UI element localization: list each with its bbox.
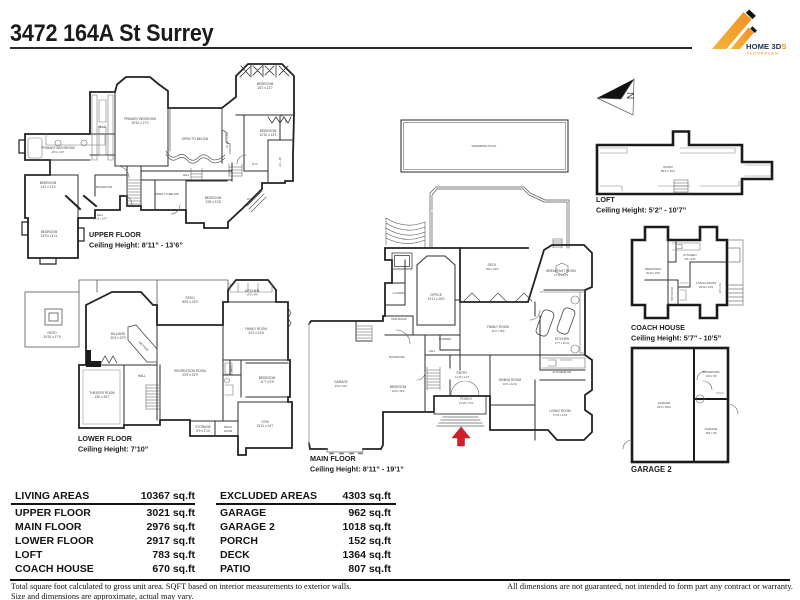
svg-text:20'4 x 11'7: 20'4 x 11'7 [52,150,65,154]
svg-text:LAUNDRY: LAUNDRY [393,291,406,295]
svg-text:17'11 x 12'9: 17'11 x 12'9 [554,273,569,277]
svg-text:23'9 x 23'9: 23'9 x 23'9 [182,373,197,377]
svg-text:12'8 x 10'3: 12'8 x 10'3 [392,389,405,393]
svg-text:PORCH: PORCH [460,397,472,401]
svg-text:BEDROOM: BEDROOM [390,385,407,389]
svg-text:13'9 x 14'11: 13'9 x 14'11 [41,234,58,238]
svg-text:21'9 x 18'9: 21'9 x 18'9 [492,329,505,333]
svg-text:10'4 x 4'11: 10'4 x 4'11 [719,282,722,294]
svg-text:BATH: BATH [230,366,233,372]
svg-text:11'10 x 11'7: 11'10 x 11'7 [455,375,469,379]
svg-text:COACH HOUSE: COACH HOUSE [631,323,685,332]
svg-text:GARAGE: GARAGE [334,380,348,384]
svg-text:17'11 x 13'9: 17'11 x 13'9 [553,413,568,417]
svg-text:24'2 x 22'8: 24'2 x 22'8 [248,331,263,335]
svg-text:HALL: HALL [183,173,190,177]
svg-text:ROOM: ROOM [224,429,232,433]
svg-text:LOFT: LOFT [596,195,615,204]
svg-text:13'8 x 12'8: 13'8 x 12'8 [205,200,220,204]
svg-text:OPEN TO BELOW: OPEN TO BELOW [182,137,209,141]
svg-text:Ceiling Height: 5’2” - 10’7”: Ceiling Height: 5’2” - 10’7” [596,206,687,215]
svg-text:POWDER: POWDER [439,337,451,341]
svg-text:9'9 x 1'10: 9'9 x 1'10 [196,429,210,433]
svg-text:50'2 x 19'1: 50'2 x 19'1 [661,169,676,173]
svg-text:KITCHEN: KITCHEN [245,289,260,293]
svg-text:MUD ROOM: MUD ROOM [391,317,407,321]
svg-text:MECH: MECH [224,425,232,429]
svg-text:29'10 x 14'9: 29'10 x 14'9 [699,285,713,289]
svg-text:GARAGE: GARAGE [705,427,718,431]
svg-text:BREAKFAST ROOM: BREAKFAST ROOM [546,269,576,273]
svg-text:14'2 x 13'2: 14'2 x 13'2 [40,185,55,189]
svg-text:34'10 x 17'9: 34'10 x 17'9 [44,335,61,339]
svg-text:BATHROOM: BATHROOM [389,355,405,359]
svg-text:20'4 x 22'9: 20'4 x 22'9 [110,336,125,340]
svg-text:Ceiling Height: 7’10”: Ceiling Height: 7’10” [78,445,149,454]
svg-text:15'1 x 13'7: 15'1 x 13'7 [257,86,272,90]
svg-text:N: N [624,92,635,99]
svg-text:78'2 x 20'0: 78'2 x 20'0 [486,267,499,271]
svg-text:GARAGE: GARAGE [658,401,671,405]
svg-text:21'10 x 7'10: 21'10 x 7'10 [459,401,474,405]
svg-text:FAMILY ROOM: FAMILY ROOM [487,325,509,329]
svg-text:MAIN FLOOR: MAIN FLOOR [310,454,356,463]
svg-text:HALL: HALL [429,349,436,353]
svg-text:SWIMMING POOL: SWIMMING POOL [471,144,496,148]
svg-text:DECK: DECK [488,263,498,267]
svg-text:12'10 x 13'1: 12'10 x 13'1 [260,133,277,137]
svg-text:29'10 x 15'0: 29'10 x 15'0 [646,271,660,275]
svg-text:ENTRY: ENTRY [457,371,469,375]
svg-text:W.I.C: W.I.C [98,125,106,129]
svg-text:PRIMARY BATHROOM: PRIMARY BATHROOM [41,146,75,150]
svg-text:OPEN TO BELOW: OPEN TO BELOW [155,192,179,196]
svg-text:W.I.C: W.I.C [252,163,258,166]
svg-text:Ceiling Height: 8’11” - 13’6”: Ceiling Height: 8’11” - 13’6” [89,241,183,250]
svg-text:23'11 x 14'7: 23'11 x 14'7 [257,424,274,428]
svg-text:34'3 x 18'10: 34'3 x 18'10 [657,405,671,409]
svg-text:Ceiling Height: 8’11” - 19’1”: Ceiling Height: 8’11” - 19’1” [310,465,404,474]
svg-text:16'0 x 12'11: 16'0 x 12'11 [503,382,518,386]
svg-text:15'10 x 17'2: 15'10 x 17'2 [132,121,149,125]
svg-text:18'4 x 9'8: 18'4 x 9'8 [706,431,717,435]
svg-text:WET BAR: WET BAR [138,340,150,352]
svg-text:JO ELE R JOA: JO ELE R JOA [226,132,229,148]
svg-text:LIVING ROOM: LIVING ROOM [549,409,571,413]
svg-text:17'11 x 14'7: 17'11 x 14'7 [93,217,107,221]
svg-text:13'0 x 9'9: 13'0 x 9'9 [706,374,717,378]
svg-text:HALL: HALL [138,374,146,378]
svg-text:BATHROOM: BATHROOM [96,185,113,189]
svg-text:Ceiling Height: 5’7” - 10’5”: Ceiling Height: 5’7” - 10’5” [631,334,722,343]
svg-text:13'0 x 26'7: 13'0 x 26'7 [94,395,109,399]
svg-text:W.I.C: W.I.C [247,198,253,201]
svg-text:KITCHENETTE: KITCHENETTE [553,370,572,374]
svg-text:KITCHEN: KITCHEN [683,253,696,257]
svg-text:UPPER FLOOR: UPPER FLOOR [89,230,142,239]
svg-text:9'8 x 9'10: 9'8 x 9'10 [685,257,696,261]
svg-text:23'9 x 32'1: 23'9 x 32'1 [335,384,348,388]
svg-text:HALL: HALL [97,213,104,217]
svg-text:17'7 x 21'11: 17'7 x 21'11 [555,341,570,345]
svg-text:LOWER FLOOR: LOWER FLOOR [78,434,133,443]
svg-text:13'9 x 9'9: 13'9 x 9'9 [246,293,258,297]
svg-text:BATHROOM: BATHROOM [671,287,674,301]
svg-text:14'11 x 16'9: 14'11 x 16'9 [428,297,445,301]
svg-text:BEDROOM: BEDROOM [645,267,661,271]
svg-text:A/C + JB: A/C + JB [279,157,282,167]
svg-text:LIVING ROOM: LIVING ROOM [696,281,717,285]
svg-text:BATHROOM: BATHROOM [702,370,720,374]
svg-text:80'5 x 24'9: 80'5 x 24'9 [182,300,197,304]
svg-text:DINING ROOM: DINING ROOM [499,378,521,382]
svg-text:11'7 x 9'9: 11'7 x 9'9 [260,380,273,384]
svg-text:GARAGE 2: GARAGE 2 [631,465,672,474]
svg-text:KITCHEN: KITCHEN [555,337,570,341]
